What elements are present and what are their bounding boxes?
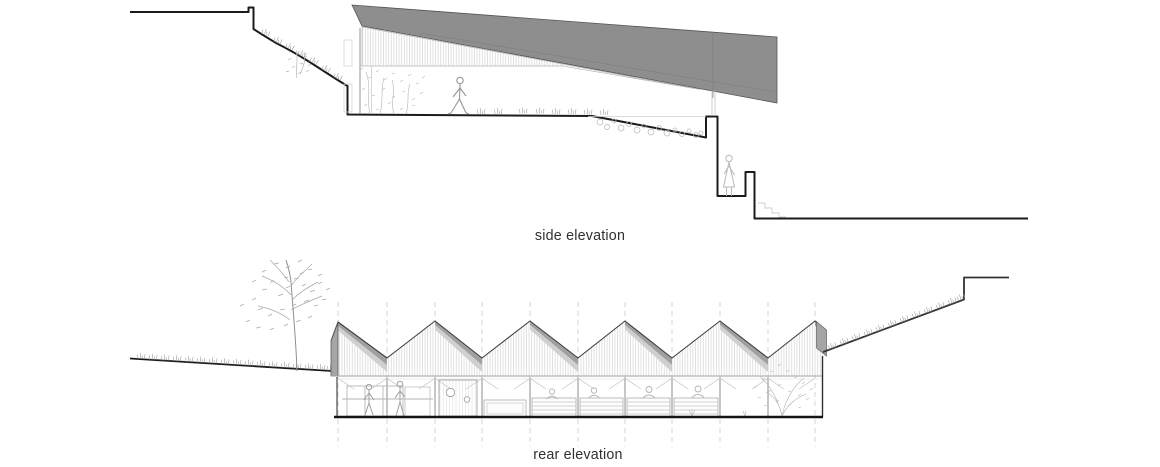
standing-person-figure [724,155,735,196]
tree-sketch [240,260,330,371]
rear-elevation-drawing [130,260,1009,447]
porthole-window-small [464,397,470,403]
side-elevation-drawing [130,5,1028,219]
floor-grass-tufts [478,108,609,116]
porthole-window [446,388,454,396]
ground-line-left [130,359,332,372]
elevation-drawings-canvas: side elevation rear elevation [0,0,1160,467]
wall-braces [339,379,814,389]
grass-tufts-left [138,353,336,371]
rear-elevation-caption: rear elevation [468,447,688,463]
door-panel [439,380,477,416]
hill-grass-tufts [262,28,343,80]
slat-benches [484,398,718,417]
stairs-sketch [758,203,786,217]
ground-line-right [823,278,1009,353]
walking-person-figure [448,77,469,114]
side-elevation-caption: side elevation [470,228,690,244]
grass-tufts-right [827,293,965,350]
climbing-plant-sketch [360,68,425,114]
